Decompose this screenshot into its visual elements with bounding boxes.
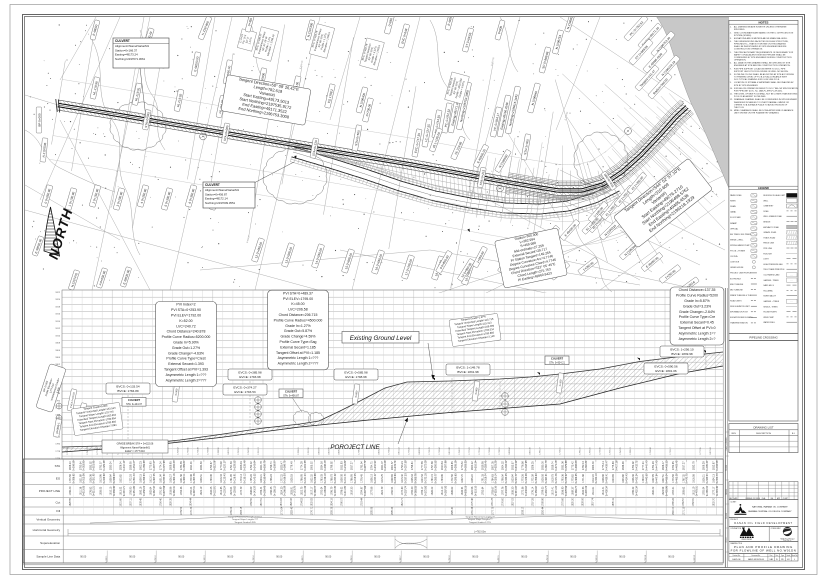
svg-text:Grade Out=3.23%: Grade Out=3.23% bbox=[683, 304, 711, 308]
svg-text:1777.39: 1777.39 bbox=[97, 447, 99, 455]
svg-text:Northing=2197071.3661: Northing=2197071.3661 bbox=[115, 57, 146, 61]
svg-text:1815.79: 1815.79 bbox=[381, 473, 384, 482]
svg-text:Chord Distance=206.715: Chord Distance=206.715 bbox=[279, 313, 318, 317]
svg-text:1773.49: 1773.49 bbox=[409, 447, 411, 455]
svg-text:90.00: 90.00 bbox=[227, 556, 234, 559]
svg-text:0+348.64: 0+348.64 bbox=[525, 485, 528, 496]
svg-text:0+143.32: 0+143.32 bbox=[254, 473, 257, 484]
svg-text:1800.07: 1800.07 bbox=[673, 506, 675, 515]
svg-text:SAND HILLS: SAND HILLS bbox=[763, 284, 774, 287]
svg-text:1777.59: 1777.59 bbox=[700, 447, 702, 455]
svg-text:0+067.34: 0+067.34 bbox=[153, 485, 156, 496]
svg-text:1831.66: 1831.66 bbox=[120, 497, 122, 506]
svg-text:0+097.78: 0+097.78 bbox=[193, 473, 196, 484]
svg-text:BRIDGE: BRIDGE bbox=[763, 222, 771, 224]
svg-text:BVCE: 1839.98: BVCE: 1839.98 bbox=[671, 352, 693, 356]
svg-text:1774.01: 1774.01 bbox=[559, 446, 561, 454]
svg-text:1820.44: 1820.44 bbox=[543, 506, 545, 515]
svg-text:Tangent Horizontal Length=??: Tangent Horizontal Length=?? bbox=[465, 516, 495, 519]
svg-text:1775.46: 1775.46 bbox=[472, 497, 474, 506]
svg-text:PID-001: PID-001 bbox=[726, 465, 728, 471]
svg-text:0+196.19: 0+196.19 bbox=[324, 473, 327, 484]
svg-text:1796.40: 1796.40 bbox=[161, 497, 163, 506]
svg-text:1774.72: 1774.72 bbox=[429, 447, 431, 455]
svg-text:0+128.52: 0+128.52 bbox=[233, 460, 236, 471]
svg-text:INFORMATION POST: INFORMATION POST bbox=[730, 311, 749, 314]
svg-text:0+173.75: 0+173.75 bbox=[294, 485, 297, 496]
svg-text:0+356.60: 0+356.60 bbox=[535, 473, 538, 484]
svg-text:1792.98: 1792.98 bbox=[650, 447, 652, 455]
svg-text:1820.85: 1820.85 bbox=[612, 474, 615, 483]
svg-text:CLIENT:: CLIENT: bbox=[730, 502, 736, 504]
svg-text:DANAN OIL FIELD DEVELOPMENT: DANAN OIL FIELD DEVELOPMENT bbox=[734, 521, 792, 525]
svg-text:1831.60: 1831.60 bbox=[200, 461, 203, 470]
svg-text:Asymmetric Length 2=???: Asymmetric Length 2=??? bbox=[166, 378, 207, 382]
svg-text:90.00: 90.00 bbox=[570, 556, 577, 559]
svg-text:1830.24: 1830.24 bbox=[109, 461, 112, 470]
svg-text:0+006.82: 0+006.82 bbox=[73, 473, 76, 484]
svg-text:0+455.04: 0+455.04 bbox=[666, 473, 669, 484]
svg-text:0+265.53: 0+265.53 bbox=[414, 485, 417, 496]
svg-text:1839.39: 1839.39 bbox=[332, 506, 334, 515]
svg-text:90.00: 90.00 bbox=[129, 556, 136, 559]
svg-text:Chord Distance=137.35: Chord Distance=137.35 bbox=[679, 288, 716, 292]
svg-text:1827.03: 1827.03 bbox=[512, 497, 514, 506]
svg-text:LVC=206.58: LVC=206.58 bbox=[288, 308, 307, 312]
svg-text:FOR FLOWLINE OF WELL NO.W01DN: FOR FLOWLINE OF WELL NO.W01DN bbox=[731, 549, 797, 553]
svg-text:Tangent Offset at PVI=0: Tangent Offset at PVI=0 bbox=[678, 326, 715, 330]
svg-text:STA: STA bbox=[55, 464, 61, 468]
svg-text:CULTIVATED LAND: CULTIVATED LAND bbox=[763, 274, 780, 277]
svg-text:0+409.34: 0+409.34 bbox=[605, 485, 608, 496]
svg-text:0+120.24: 0+120.24 bbox=[223, 485, 226, 496]
svg-text:1776.17: 1776.17 bbox=[670, 447, 672, 455]
svg-text:1774.04: 1774.04 bbox=[439, 446, 441, 454]
svg-text:1786.40: 1786.40 bbox=[69, 486, 72, 495]
svg-text:0+356.84: 0+356.84 bbox=[535, 485, 538, 496]
svg-text:External Secant=0.45: External Secant=0.45 bbox=[680, 321, 714, 325]
svg-text:Grade In=1.27%: Grade In=1.27% bbox=[285, 324, 311, 328]
svg-text:Type: Type bbox=[781, 555, 784, 557]
svg-text:DRAIN: DRAIN bbox=[730, 205, 736, 208]
svg-text:90.00: 90.00 bbox=[619, 556, 626, 559]
svg-text:0+067.05: 0+067.05 bbox=[153, 473, 156, 484]
svg-text:EVCS: 0+590.56: EVCS: 0+590.56 bbox=[654, 364, 677, 368]
svg-text:1802.42: 1802.42 bbox=[652, 486, 655, 495]
svg-text:1793.31: 1793.31 bbox=[610, 447, 612, 455]
svg-text:POROJECT LINE: POROJECT LINE bbox=[330, 444, 380, 451]
svg-text:HOUSE PUMPS: HOUSE PUMPS bbox=[763, 312, 777, 314]
svg-text:0+166.00: 0+166.00 bbox=[284, 473, 287, 484]
svg-text:STA: 0+456.87: STA: 0+456.87 bbox=[283, 395, 300, 398]
svg-text:Grade In=5.87%: Grade In=5.87% bbox=[684, 299, 710, 303]
svg-text:1835.23: 1835.23 bbox=[392, 506, 394, 515]
svg-text:EG: EG bbox=[56, 477, 61, 481]
svg-text:Grade Change=-2.64%: Grade Change=-2.64% bbox=[679, 310, 715, 314]
svg-text:Tangent Grade=5.905: Tangent Grade=5.905 bbox=[234, 521, 256, 524]
svg-text:1775.24: 1775.24 bbox=[479, 446, 481, 454]
svg-text:SHRUB + WELL: SHRUB + WELL bbox=[730, 239, 743, 241]
svg-text:1828.53: 1828.53 bbox=[290, 474, 293, 483]
svg-text:SPRING-WATER PUMP: SPRING-WATER PUMP bbox=[730, 244, 750, 247]
svg-text:0+432.04: 0+432.04 bbox=[635, 473, 638, 484]
svg-text:0+128.62: 0+128.62 bbox=[233, 485, 236, 496]
svg-text:CONTOUR: CONTOUR bbox=[730, 262, 740, 264]
svg-text:SUPPORT LAYOUT FOR FLOWLINE OF: SUPPORT LAYOUT FOR FLOWLINE OF WELL NO.W… bbox=[734, 70, 789, 73]
svg-text:WELL: WELL bbox=[763, 200, 768, 202]
svg-text:0+150.49: 0+150.49 bbox=[264, 473, 267, 484]
svg-text:ASPHALTIC ROAD: ASPHALTIC ROAD bbox=[763, 226, 779, 229]
svg-text:1796.50: 1796.50 bbox=[248, 447, 250, 455]
svg-text:SPECIFIED.: SPECIFIED. bbox=[734, 29, 746, 31]
svg-text:LEGEND: LEGEND bbox=[758, 186, 769, 190]
svg-text:0+013.03: 0+013.03 bbox=[83, 485, 86, 496]
svg-text:1807.72: 1807.72 bbox=[461, 473, 464, 482]
svg-text:1808.56: 1808.56 bbox=[419, 446, 421, 454]
svg-text:Vertical Geometry: Vertical Geometry bbox=[36, 518, 60, 522]
svg-text:Profile Curve Type=Crest: Profile Curve Type=Crest bbox=[166, 357, 205, 361]
svg-text:ELEVATIONS ARE IN METERS ABOVE: ELEVATIONS ARE IN METERS ABOVE MEAN SEA … bbox=[734, 37, 788, 40]
svg-text:CULVERT: CULVERT bbox=[551, 357, 563, 361]
svg-text:PAVED ROAD: PAVED ROAD bbox=[730, 194, 742, 197]
svg-text:PVI STA=0+253.90: PVI STA=0+253.90 bbox=[171, 308, 201, 312]
svg-text:0+181.36: 0+181.36 bbox=[304, 485, 307, 496]
svg-text:1824.19: 1824.19 bbox=[331, 497, 333, 506]
svg-text:0+211.71: 0+211.71 bbox=[344, 473, 347, 484]
svg-text:Grade Out=1.27%: Grade Out=1.27% bbox=[172, 346, 200, 350]
svg-text:1788.56: 1788.56 bbox=[218, 446, 220, 454]
svg-text:Horizontal Geometry: Horizontal Geometry bbox=[33, 528, 61, 532]
svg-text:PL: PL bbox=[776, 559, 778, 561]
svg-text:1782.54: 1782.54 bbox=[391, 486, 394, 495]
svg-text:GREEN HOUSE: GREEN HOUSE bbox=[730, 267, 744, 269]
svg-text:1776.48: 1776.48 bbox=[361, 473, 364, 482]
svg-text:0+257.74: 0+257.74 bbox=[404, 485, 407, 496]
svg-text:0+036.20: 0+036.20 bbox=[113, 473, 116, 484]
svg-text:BVCS: 0+133.54: BVCS: 0+133.54 bbox=[116, 384, 139, 388]
svg-text:1832.82: 1832.82 bbox=[311, 497, 313, 506]
svg-text:SYSTEM (WGS84).: SYSTEM (WGS84). bbox=[734, 35, 752, 37]
svg-text:0+295.63: 0+295.63 bbox=[455, 473, 458, 484]
svg-text:1783.16: 1783.16 bbox=[590, 447, 592, 455]
svg-text:1794.05: 1794.05 bbox=[620, 447, 622, 455]
svg-text:0+440.69: 0+440.69 bbox=[645, 473, 648, 484]
svg-text:1797.29: 1797.29 bbox=[532, 497, 534, 506]
svg-text:STA: 0+934.21: STA: 0+934.21 bbox=[549, 362, 566, 365]
svg-text:DOC.TYPICAL DRAWING FOR FLOW L: DOC.TYPICAL DRAWING FOR FLOW LINE P.O.B. bbox=[734, 78, 780, 81]
svg-text:1826.25: 1826.25 bbox=[532, 461, 535, 470]
svg-text:RIVER VALLEY: RIVER VALLEY bbox=[763, 295, 776, 298]
svg-text:DESCRIPTION: DESCRIPTION bbox=[756, 433, 771, 435]
svg-text:Tangent Offset at PVI=1.185: Tangent Offset at PVI=1.185 bbox=[276, 351, 320, 355]
svg-text:LIMIT SHOWN ON THE PLANIMETRY: LIMIT SHOWN ON THE PLANIMETRY DRAWING. bbox=[734, 112, 780, 115]
svg-text:0+447.84: 0+447.84 bbox=[656, 473, 659, 484]
svg-text:P.O.B OF ADJACENT FLOWLINES.: P.O.B OF ADJACENT FLOWLINES. bbox=[734, 95, 766, 98]
svg-text:0+485.94: 0+485.94 bbox=[706, 473, 709, 484]
svg-text:GRAVEL ROAD: GRAVEL ROAD bbox=[763, 231, 776, 234]
svg-text:0+318.74: 0+318.74 bbox=[485, 473, 488, 484]
svg-text:RIVER: RIVER bbox=[730, 201, 736, 203]
svg-text:1823.82: 1823.82 bbox=[119, 474, 122, 483]
svg-text:0+082.30: 0+082.30 bbox=[173, 460, 176, 471]
svg-text:FENCE LINE: FENCE LINE bbox=[763, 243, 774, 245]
svg-text:Asymmetric Length 1=???: Asymmetric Length 1=??? bbox=[166, 373, 207, 377]
svg-text:PID-001: PID-001 bbox=[726, 513, 728, 519]
svg-text:0+013.06: 0+013.06 bbox=[83, 473, 86, 484]
svg-text:0+333.05: 0+333.05 bbox=[505, 473, 508, 484]
svg-text:PVI Index=2: PVI Index=2 bbox=[176, 303, 195, 307]
svg-text:1794.52: 1794.52 bbox=[301, 497, 303, 506]
svg-text:1785.77: 1785.77 bbox=[539, 446, 541, 454]
svg-text:0+249.63: 0+249.63 bbox=[394, 473, 397, 484]
svg-text:0+333.95: 0+333.95 bbox=[505, 485, 508, 496]
svg-text:EVCE: 1793.53: EVCE: 1793.53 bbox=[234, 390, 256, 394]
svg-text:1838.45: 1838.45 bbox=[141, 497, 143, 506]
svg-text:BUILDING VILLAGE LIMIT: BUILDING VILLAGE LIMIT bbox=[763, 194, 785, 197]
svg-text:CANAL: CANAL bbox=[730, 211, 736, 214]
svg-text:IRANIAN CENTRAL OIL FIELDS COM: IRANIAN CENTRAL OIL FIELDS COMPANY bbox=[748, 510, 792, 513]
svg-text:. . .: . . . bbox=[790, 280, 793, 282]
svg-text:1821.77: 1821.77 bbox=[402, 497, 404, 506]
svg-text:11.: 11. bbox=[730, 94, 733, 96]
svg-text:EVCE: 1793.68: EVCE: 1793.68 bbox=[239, 375, 261, 379]
svg-text:0+166.09: 0+166.09 bbox=[284, 485, 287, 496]
svg-text:0+341.77: 0+341.77 bbox=[515, 473, 518, 484]
svg-text:THE UNDERGROUND FACILITIES SUC: THE UNDERGROUND FACILITIES SUCH AS STRUC… bbox=[734, 40, 789, 43]
svg-text:1798.92: 1798.92 bbox=[331, 461, 334, 470]
svg-text:1780.33: 1780.33 bbox=[580, 446, 582, 454]
svg-text:GRADE BREAK STA = 0+032.06: GRADE BREAK STA = 0+032.06 bbox=[117, 443, 154, 446]
svg-text:0+150.45: 0+150.45 bbox=[264, 485, 267, 496]
svg-text:Profile Curve Radius=5200: Profile Curve Radius=5200 bbox=[676, 294, 718, 298]
svg-text:EG PROFILE: EG PROFILE bbox=[730, 278, 742, 280]
svg-text:0+364.77: 0+364.77 bbox=[545, 485, 548, 496]
svg-text:ALL DATA ON THIS DRAWING SHALL: ALL DATA ON THIS DRAWING SHALL BE CHECKE… bbox=[734, 62, 791, 65]
svg-text:0+082.31: 0+082.31 bbox=[173, 485, 176, 496]
svg-text:REV: REV bbox=[732, 433, 737, 435]
svg-text:0+074.58: 0+074.58 bbox=[163, 485, 166, 496]
svg-text:PIPELINE CROSSING: PIPELINE CROSSING bbox=[749, 335, 777, 339]
svg-text:0+310.10: 0+310.10 bbox=[475, 485, 478, 496]
svg-text:1807.74: 1807.74 bbox=[593, 497, 595, 506]
svg-text:1772.38: 1772.38 bbox=[198, 446, 200, 454]
svg-text:1782.61: 1782.61 bbox=[298, 446, 300, 454]
svg-text:EVCE: 1801.06: EVCE: 1801.06 bbox=[655, 369, 677, 373]
svg-text:Northing=2197009.3551: Northing=2197009.3551 bbox=[205, 201, 236, 205]
svg-text:CULVERT: CULVERT bbox=[205, 183, 220, 187]
svg-text:K=45.00: K=45.00 bbox=[291, 302, 304, 306]
svg-text:Asymmetric Length 2=?: Asymmetric Length 2=? bbox=[679, 337, 716, 341]
svg-text:HIGH PRESSURE GAS: HIGH PRESSURE GAS bbox=[763, 263, 783, 266]
svg-text:External Secant=1.185: External Secant=1.185 bbox=[280, 345, 316, 349]
svg-text:0+371.46: 0+371.46 bbox=[555, 473, 558, 484]
svg-text:1801.88: 1801.88 bbox=[449, 447, 451, 455]
svg-text:14.: 14. bbox=[730, 110, 733, 112]
svg-text:Grade Out=5.87%: Grade Out=5.87% bbox=[284, 329, 312, 333]
svg-text:EVCS: 0+585.98: EVCS: 0+585.98 bbox=[344, 370, 367, 374]
svg-text:ELEV = 1777.010: ELEV = 1777.010 bbox=[125, 450, 145, 453]
svg-text:1777.70: 1777.70 bbox=[492, 506, 494, 515]
svg-text:1775.66: 1775.66 bbox=[563, 497, 565, 506]
svg-text:1796.84: 1796.84 bbox=[411, 461, 414, 470]
svg-text:0+364.91: 0+364.91 bbox=[545, 473, 548, 484]
svg-text:1805.39: 1805.39 bbox=[529, 447, 531, 455]
svg-text:0+402.10: 0+402.10 bbox=[595, 473, 598, 484]
svg-text:1837.11: 1837.11 bbox=[130, 497, 132, 506]
svg-text:Existing Ground Level: Existing Ground Level bbox=[350, 335, 412, 342]
svg-text:Fill: Fill bbox=[56, 509, 60, 513]
svg-text:OTHERS TO A SUITABLE PLACE TO: OTHERS TO A SUITABLE PLACE TO AVOID EROS… bbox=[734, 103, 788, 106]
svg-text:1790.31: 1790.31 bbox=[87, 447, 89, 455]
svg-text:1807.62: 1807.62 bbox=[710, 447, 712, 455]
svg-text:CONSTRUCTION OPERATION.: CONSTRUCTION OPERATION. bbox=[734, 48, 763, 51]
svg-text:1817.27: 1817.27 bbox=[682, 461, 685, 470]
svg-text:IHH-PD-140: IHH-PD-140 bbox=[732, 559, 740, 561]
svg-text:1787.31: 1787.31 bbox=[672, 486, 675, 495]
svg-text:0+272.80: 0+272.80 bbox=[424, 485, 427, 496]
svg-text:THE P.O.B.: THE P.O.B. bbox=[734, 107, 745, 109]
svg-text:1774.79: 1774.79 bbox=[240, 486, 243, 495]
svg-text:0+143.37: 0+143.37 bbox=[254, 485, 257, 496]
svg-text:B.I.: B.I. bbox=[792, 433, 796, 435]
svg-text:WELL GRAVED ROAD: WELL GRAVED ROAD bbox=[763, 215, 782, 218]
svg-text:1777.88: 1777.88 bbox=[371, 486, 374, 495]
svg-text:STA: 0+144.37: STA: 0+144.37 bbox=[126, 403, 143, 406]
svg-text:0+341.24: 0+341.24 bbox=[515, 485, 518, 496]
svg-text:END TUBELINE: END TUBELINE bbox=[730, 284, 744, 286]
svg-text:EVCS: 0+374.27: EVCS: 0+374.27 bbox=[233, 385, 256, 389]
svg-text:0+051.40: 0+051.40 bbox=[133, 473, 136, 484]
svg-text:PIPELINE,ETC., THAT NOT SHOWN: PIPELINE,ETC., THAT NOT SHOWN ON THIS DR… bbox=[734, 43, 786, 46]
svg-text:90.00: 90.00 bbox=[80, 556, 87, 559]
svg-text:0+021.21: 0+021.21 bbox=[93, 485, 96, 496]
svg-text:1774.66: 1774.66 bbox=[489, 447, 491, 455]
svg-text:1770.60: 1770.60 bbox=[188, 447, 190, 455]
svg-text:SIDE ELEVATION LIMIT: SIDE ELEVATION LIMIT bbox=[730, 305, 751, 308]
svg-text:0+493.70: 0+493.70 bbox=[716, 473, 719, 484]
svg-text:1835.19: 1835.19 bbox=[613, 497, 615, 506]
svg-text:1772.92: 1772.92 bbox=[389, 447, 391, 455]
svg-text:1781.26: 1781.26 bbox=[472, 506, 474, 515]
svg-text:Cut: Cut bbox=[56, 500, 61, 504]
svg-text:1834.44: 1834.44 bbox=[191, 497, 193, 506]
svg-text:BVCE: 1784.89: BVCE: 1784.89 bbox=[117, 389, 139, 393]
svg-text:0+158.12: 0+158.12 bbox=[274, 485, 277, 496]
svg-text:1789.57: 1789.57 bbox=[683, 497, 685, 506]
svg-text:1794.62: 1794.62 bbox=[178, 446, 180, 454]
svg-text:1805.15: 1805.15 bbox=[241, 506, 243, 515]
svg-text:0+478.51: 0+478.51 bbox=[696, 485, 699, 496]
svg-text:SWAMP: SWAMP bbox=[730, 222, 738, 225]
svg-text:CULVERT: CULVERT bbox=[115, 39, 130, 43]
svg-text:PVI STA=0+489.37: PVI STA=0+489.37 bbox=[283, 291, 313, 295]
svg-text:PROJECT LINE: PROJECT LINE bbox=[39, 489, 60, 493]
svg-text:1832.79: 1832.79 bbox=[692, 461, 695, 470]
svg-text:DAN-PL-W01DN: DAN-PL-W01DN bbox=[725, 437, 728, 450]
svg-text:PROJECT:: PROJECT: bbox=[730, 519, 738, 521]
svg-text:SAFETY OF ADJACENT EXISTING PI: SAFETY OF ADJACENT EXISTING PIPELINE SHA… bbox=[734, 53, 786, 56]
svg-text:1836.51: 1836.51 bbox=[200, 473, 203, 482]
svg-text:0+074.31: 0+074.31 bbox=[163, 473, 166, 484]
svg-text:0+143.64: 0+143.64 bbox=[254, 460, 257, 471]
svg-text:PIPE LINE: PIPE LINE bbox=[763, 248, 772, 250]
svg-text:0+287.00: 0+287.00 bbox=[444, 485, 447, 496]
svg-text:1836.36: 1836.36 bbox=[622, 461, 625, 470]
svg-text:SPARE TUBELINE & TUB: SPARE TUBELINE & TUB bbox=[730, 294, 752, 297]
svg-text:1789.00: 1789.00 bbox=[231, 506, 233, 515]
svg-text:Tangent Slope Length=??: Tangent Slope Length=?? bbox=[468, 518, 494, 521]
svg-text:1808.84: 1808.84 bbox=[509, 447, 511, 455]
svg-text:1828.35: 1828.35 bbox=[171, 497, 173, 506]
svg-text:1819.33: 1819.33 bbox=[351, 486, 354, 495]
svg-text:0+059.93: 0+059.93 bbox=[143, 473, 146, 484]
svg-text:90.00: 90.00 bbox=[521, 556, 528, 559]
svg-text:0+455.96: 0+455.96 bbox=[666, 485, 669, 496]
svg-text:1838.17: 1838.17 bbox=[522, 506, 524, 515]
svg-text:1809.62: 1809.62 bbox=[451, 486, 454, 495]
svg-text:90.00: 90.00 bbox=[423, 556, 430, 559]
svg-text:1771.68: 1771.68 bbox=[582, 473, 585, 482]
svg-text:1772.94: 1772.94 bbox=[600, 447, 602, 455]
svg-text:1781.78: 1781.78 bbox=[492, 497, 494, 506]
svg-text:Tangent Grade=1.27%: Tangent Grade=1.27% bbox=[469, 521, 491, 524]
svg-text:0+036.06: 0+036.06 bbox=[113, 485, 116, 496]
svg-text:001: 001 bbox=[787, 559, 790, 561]
svg-text:0+227.66: 0+227.66 bbox=[364, 485, 367, 496]
svg-text:1816.58: 1816.58 bbox=[692, 474, 695, 483]
svg-text:1777.63: 1777.63 bbox=[469, 447, 471, 455]
svg-text:Tangent Horizontal Length=133.: Tangent Horizontal Length=133.54 bbox=[228, 516, 262, 519]
svg-text:0+219.25: 0+219.25 bbox=[354, 473, 357, 484]
svg-text:1792.37: 1792.37 bbox=[459, 446, 461, 454]
svg-text:1820.06: 1820.06 bbox=[291, 497, 293, 506]
svg-text:90.00: 90.00 bbox=[374, 556, 381, 559]
svg-text:CEMETERY: CEMETERY bbox=[763, 206, 774, 208]
svg-text:FOR PIPELINE" (DOC. No. DAN-PL: FOR PIPELINE" (DOC. No. DAN-PL-SPE-PL-SP… bbox=[734, 89, 783, 92]
svg-text:1826.22: 1826.22 bbox=[431, 486, 434, 495]
svg-text:Profile Curve Radius=4500.000: Profile Curve Radius=4500.000 bbox=[274, 318, 323, 322]
svg-text:EVCS: 0+385.98: EVCS: 0+385.98 bbox=[238, 370, 261, 374]
svg-text:NATIONAL IRANIAN OIL COMPANY: NATIONAL IRANIAN OIL COMPANY bbox=[752, 506, 788, 509]
svg-text:1811.61: 1811.61 bbox=[592, 486, 595, 495]
svg-text:1822.19: 1822.19 bbox=[200, 486, 203, 495]
svg-text:0+280.77: 0+280.77 bbox=[434, 473, 437, 484]
svg-text:1817.27: 1817.27 bbox=[351, 461, 354, 470]
svg-text:1835.89: 1835.89 bbox=[372, 506, 374, 515]
svg-text:GARDEN - TREES: GARDEN - TREES bbox=[763, 279, 779, 282]
svg-text:1822.43: 1822.43 bbox=[291, 506, 293, 515]
svg-text:LVC=240.72: LVC=240.72 bbox=[176, 324, 195, 328]
svg-text:0+188.68: 0+188.68 bbox=[314, 473, 317, 484]
svg-text:1835.03: 1835.03 bbox=[99, 486, 102, 495]
svg-text:1788.13: 1788.13 bbox=[630, 447, 632, 455]
svg-text:0+348.08: 0+348.08 bbox=[525, 473, 528, 484]
svg-text:Chord Distance=240.878: Chord Distance=240.878 bbox=[167, 330, 206, 334]
svg-text:0+188.47: 0+188.47 bbox=[314, 485, 317, 496]
svg-text:1788.22: 1788.22 bbox=[673, 497, 675, 506]
svg-text:1788.86: 1788.86 bbox=[543, 497, 545, 506]
svg-text:0+424.40: 0+424.40 bbox=[625, 473, 628, 484]
svg-text:Grade Change=4.59%: Grade Change=4.59% bbox=[281, 335, 316, 339]
svg-text:ROAD LIMITS: ROAD LIMITS bbox=[730, 300, 742, 303]
svg-text:1828.55: 1828.55 bbox=[70, 497, 72, 506]
svg-text:Grade Change=-4.63%: Grade Change=-4.63% bbox=[168, 351, 204, 355]
svg-text:90.00: 90.00 bbox=[325, 556, 332, 559]
svg-text:1790.09: 1790.09 bbox=[210, 474, 213, 483]
svg-text:0+432.34: 0+432.34 bbox=[635, 485, 638, 496]
svg-text:EVCE: 1798.68: EVCE: 1798.68 bbox=[345, 375, 367, 379]
svg-text:0+257.30: 0+257.30 bbox=[404, 473, 407, 484]
